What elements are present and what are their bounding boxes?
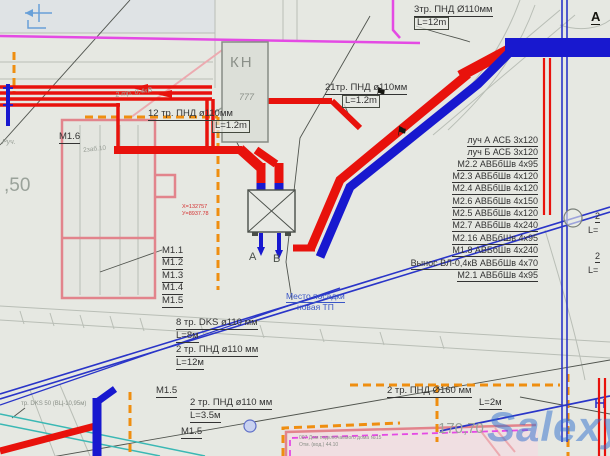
m1-list-1: М1.1 bbox=[162, 246, 183, 258]
pipe21-length: L=1.2m bbox=[342, 95, 380, 108]
note-dks: тр. DKS 50 (ВЦ-10,95м) bbox=[21, 401, 86, 407]
pipe12-label: 12 тр. ПНД ø110мм bbox=[148, 109, 233, 121]
tp-site-line2: новая ТП bbox=[297, 303, 334, 312]
tp-site-line1: Место посадки bbox=[286, 292, 345, 303]
plan-drawing: ⚑ ⚑ 3тр. ПНД Ø110ммL=12m21тр. ПНД ø110мм… bbox=[0, 0, 610, 456]
kn-title: КН bbox=[230, 55, 254, 70]
cable04-note: 2 тр. 0,4кВ bbox=[115, 87, 153, 99]
cable-row-m2-16: М2.16 АВБбШв 4х95 bbox=[452, 234, 538, 245]
label-layer: 3тр. ПНД Ø110ммL=12m21тр. ПНД ø110ммL=1.… bbox=[0, 0, 610, 456]
coord-y: У=8937.78 bbox=[182, 212, 209, 218]
m1-5-lower: М1.5 bbox=[181, 427, 202, 439]
cable-row-m2-7: М2.7 АВБбШв 4х240 bbox=[452, 221, 538, 232]
note-ruch: Руч. bbox=[2, 139, 16, 146]
tp-outlet-a: А bbox=[249, 252, 256, 263]
cable-row-m2-5: М2.5 АВБбШв 4х120 bbox=[452, 209, 538, 220]
pipe2-35-length: L=3.5м bbox=[190, 411, 221, 423]
cable-row-m1-8: М1.8 АВБбШв 4х240 bbox=[452, 246, 538, 257]
pipe3-top-label: 3тр. ПНД Ø110мм bbox=[414, 5, 493, 17]
pipe160-label: 2 тр. ПНД Ø160 мм bbox=[387, 386, 472, 398]
cable-row-vynos: Вынос ВЛ-0,4кВ АВБбШв 4х70 bbox=[411, 259, 538, 270]
tp-outlet-b: В bbox=[273, 254, 280, 265]
pipe2-12-length: L=12м bbox=[176, 358, 204, 370]
kn-symbol: 777 bbox=[239, 93, 254, 102]
pipe2-12-label: 2 тр. ПНД ø110 мм bbox=[176, 345, 258, 357]
cable-row-m2-1: М2.1 АВБбШв 4х95 bbox=[457, 271, 538, 282]
pipe12-length: L=1.2m bbox=[212, 120, 250, 133]
elevation-170: 170,70 bbox=[438, 421, 484, 436]
cable-row-m2-6: М2.6 АВБбШв 4х150 bbox=[452, 197, 538, 208]
edge-label-la: L= bbox=[588, 226, 598, 235]
m1-5-left: М1.5 bbox=[156, 386, 177, 398]
m1-list-4: М1.4 bbox=[162, 283, 183, 295]
m1-list-2: М1.2 bbox=[162, 258, 183, 270]
edge-label-2b: 2 bbox=[595, 252, 600, 263]
m1-6-label: М1.6 bbox=[59, 132, 80, 144]
coord-x: Х=132757 bbox=[182, 205, 207, 211]
bldg-note-1: 007 Дом подключаемого дома №15 bbox=[299, 436, 381, 441]
flag-a-top-right: А bbox=[591, 10, 600, 25]
cable-row-luch-a: луч А АСБ 3х120 bbox=[467, 136, 538, 147]
note-zab: 2заб.10 bbox=[83, 146, 107, 155]
edge-label-lb: L= bbox=[588, 266, 598, 275]
cable-row-m2-3: М2.3 АВБбШв 4х120 bbox=[452, 172, 538, 183]
pipe2-35-label: 2 тр. ПНД ø110 мм bbox=[190, 398, 272, 410]
salexy-watermark: Salexy bbox=[487, 403, 610, 451]
pipe8-label: 8 тр. DKS ø110 мм bbox=[176, 318, 258, 330]
m1-list-3: М1.3 bbox=[162, 271, 183, 283]
pipe8-length: L=8м bbox=[176, 331, 199, 343]
m1-list-5: М1.5 bbox=[162, 296, 183, 308]
bldg-note-2: Отм. (вод.) 44.10 bbox=[299, 443, 338, 448]
cable-row-m2-2: М2.2 АВБбШв 4х95 bbox=[457, 160, 538, 171]
cable-row-luch-b: луч Б АСБ 3х120 bbox=[467, 148, 538, 159]
pipe21-label: 21тр. ПНД ø110мм bbox=[325, 83, 407, 95]
cable-row-m2-4: М2.4 АВБбШв 4х120 bbox=[452, 184, 538, 195]
edge-label-2a: 2 bbox=[595, 212, 600, 223]
pipe3-top-length: L=12m bbox=[414, 17, 449, 30]
elevation-50: ,50 bbox=[4, 176, 30, 195]
